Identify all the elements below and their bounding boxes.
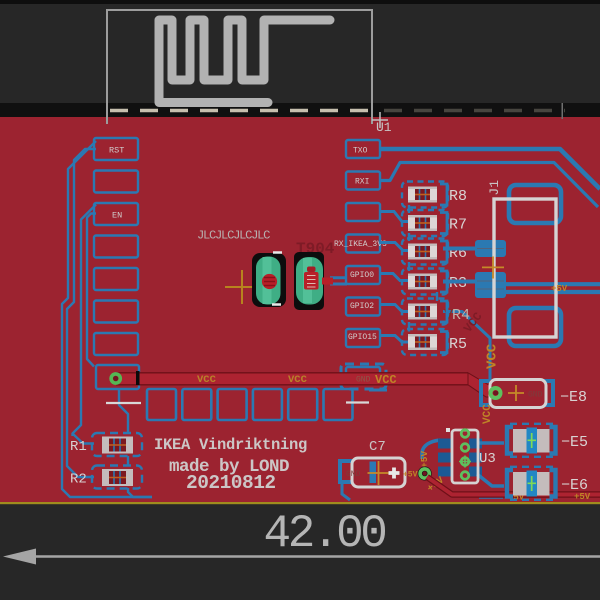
svg-text:VCC: VCC xyxy=(482,404,494,424)
svg-text:R8: R8 xyxy=(449,188,467,205)
svg-text:VCC: VCC xyxy=(288,374,308,386)
svg-text:−E8: −E8 xyxy=(560,389,587,406)
svg-text:42.00: 42.00 xyxy=(263,508,385,560)
svg-text:J1: J1 xyxy=(487,180,502,196)
svg-text:R1: R1 xyxy=(70,439,87,455)
svg-text:C7: C7 xyxy=(369,439,386,455)
svg-text:VCC: VCC xyxy=(197,374,217,386)
svg-text:+5V: +5V xyxy=(403,471,418,480)
svg-text:GND: GND xyxy=(356,376,371,385)
svg-text:GPIO2: GPIO2 xyxy=(350,302,374,311)
svg-text:VCC: VCC xyxy=(375,373,397,387)
svg-text:RX_IKEA_3V3: RX_IKEA_3V3 xyxy=(334,240,387,249)
svg-text:EN: EN xyxy=(112,211,122,221)
svg-text:IKEA Vindriktning: IKEA Vindriktning xyxy=(154,436,307,454)
svg-text:+5V: +5V xyxy=(551,284,568,294)
svg-text:R2: R2 xyxy=(70,472,87,488)
svg-text:VCC: VCC xyxy=(485,343,501,369)
svg-text:R7: R7 xyxy=(449,217,467,234)
svg-text:RST: RST xyxy=(109,146,124,156)
svg-text:U3: U3 xyxy=(479,451,496,467)
svg-text:TXO: TXO xyxy=(353,147,368,156)
svg-text:20210812: 20210812 xyxy=(186,472,276,494)
svg-text:JLCJLCJLCJLC: JLCJLCJLCJLC xyxy=(197,229,270,243)
svg-text:GPIO0: GPIO0 xyxy=(350,271,374,280)
svg-text:+5V: +5V xyxy=(419,451,430,468)
svg-text:GND: GND xyxy=(346,470,361,479)
svg-text:R5: R5 xyxy=(449,336,467,353)
svg-text:GND: GND xyxy=(528,391,543,400)
svg-text:RXI: RXI xyxy=(355,178,369,187)
svg-text:−E5: −E5 xyxy=(561,434,588,451)
svg-text:−E6: −E6 xyxy=(561,477,588,494)
svg-text:U1: U1 xyxy=(376,120,392,135)
svg-text:GPIO15: GPIO15 xyxy=(348,333,377,342)
